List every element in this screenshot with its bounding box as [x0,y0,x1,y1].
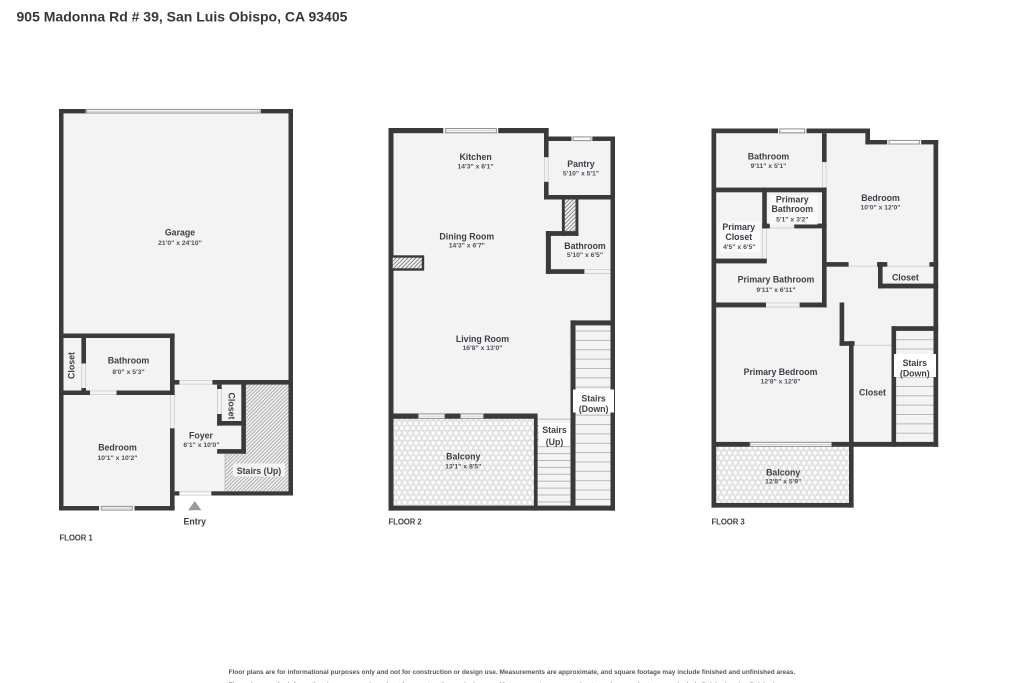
svg-text:Closet: Closet [859,387,886,397]
svg-text:6'1" x 10'0": 6'1" x 10'0" [183,442,219,449]
svg-text:9'11" x 6'11": 9'11" x 6'11" [756,287,795,294]
svg-text:Living Room: Living Room [456,334,509,344]
svg-text:9'11" x 5'1": 9'11" x 5'1" [751,163,787,170]
svg-text:Pantry: Pantry [567,159,594,169]
svg-text:5'1" x 3'2": 5'1" x 3'2" [776,216,808,223]
svg-text:4'5" x 6'5": 4'5" x 6'5" [723,244,755,251]
svg-text:Primary Bathroom: Primary Bathroom [738,274,815,284]
svg-text:Foyer: Foyer [189,431,214,441]
svg-text:Primary: Primary [776,194,809,204]
svg-text:Closet: Closet [67,352,77,379]
svg-text:5'10" x 6'5": 5'10" x 6'5" [567,252,603,259]
svg-text:12'8" x 5'9": 12'8" x 5'9" [765,478,801,485]
svg-text:14'3" x 6'1": 14'3" x 6'1" [458,163,494,170]
svg-text:Stairs: Stairs [581,394,606,404]
svg-text:8'0" x 5'3": 8'0" x 5'3" [112,369,144,376]
svg-text:Bathroom: Bathroom [108,355,150,365]
svg-text:Bedroom: Bedroom [98,442,137,452]
svg-text:FLOOR 3: FLOOR 3 [712,518,746,527]
svg-text:Primary: Primary [722,222,755,232]
svg-text:Garage: Garage [165,227,195,237]
svg-text:Bathroom: Bathroom [772,204,814,214]
svg-text:Bathroom: Bathroom [564,241,606,251]
svg-text:Stairs (Up): Stairs (Up) [237,466,282,476]
svg-text:FLOOR 1: FLOOR 1 [60,534,94,543]
svg-text:10'1" x 10'2": 10'1" x 10'2" [98,455,138,462]
svg-text:905 Madonna Rd # 39, San Luis: 905 Madonna Rd # 39, San Luis Obispo, CA… [17,8,348,24]
svg-text:Closet: Closet [892,272,919,282]
svg-text:Kitchen: Kitchen [459,152,491,162]
svg-text:Floor plans are for informatio: Floor plans are for informational purpos… [229,669,796,676]
svg-text:Bathroom: Bathroom [748,151,790,161]
svg-text:(Down): (Down) [900,368,930,378]
svg-text:Balcony: Balcony [766,467,800,477]
svg-text:12'8" x 12'6": 12'8" x 12'6" [761,379,801,386]
svg-text:16'8" x 13'0": 16'8" x 13'0" [463,345,503,352]
svg-text:Closet: Closet [725,232,752,242]
svg-text:Bedroom: Bedroom [861,193,900,203]
svg-text:Balcony: Balcony [446,451,480,461]
svg-text:Entry: Entry [184,516,207,526]
svg-text:5'10" x 5'1": 5'10" x 5'1" [563,171,599,178]
svg-text:Dining Room: Dining Room [439,231,494,241]
svg-text:21'0" x 24'10": 21'0" x 24'10" [158,240,202,247]
svg-text:13'1" x 8'5": 13'1" x 8'5" [445,464,481,471]
svg-text:10'0" x 12'0": 10'0" x 12'0" [861,204,901,211]
svg-text:Stairs: Stairs [542,425,567,435]
svg-text:Primary Bedroom: Primary Bedroom [744,367,818,377]
svg-text:14'3" x 6'7": 14'3" x 6'7" [449,242,485,249]
svg-text:(Up): (Up) [546,437,564,447]
svg-text:(Down): (Down) [579,404,609,414]
svg-text:FLOOR 2: FLOOR 2 [389,518,423,527]
svg-text:Closet: Closet [227,393,237,420]
svg-text:Stairs: Stairs [903,358,928,368]
